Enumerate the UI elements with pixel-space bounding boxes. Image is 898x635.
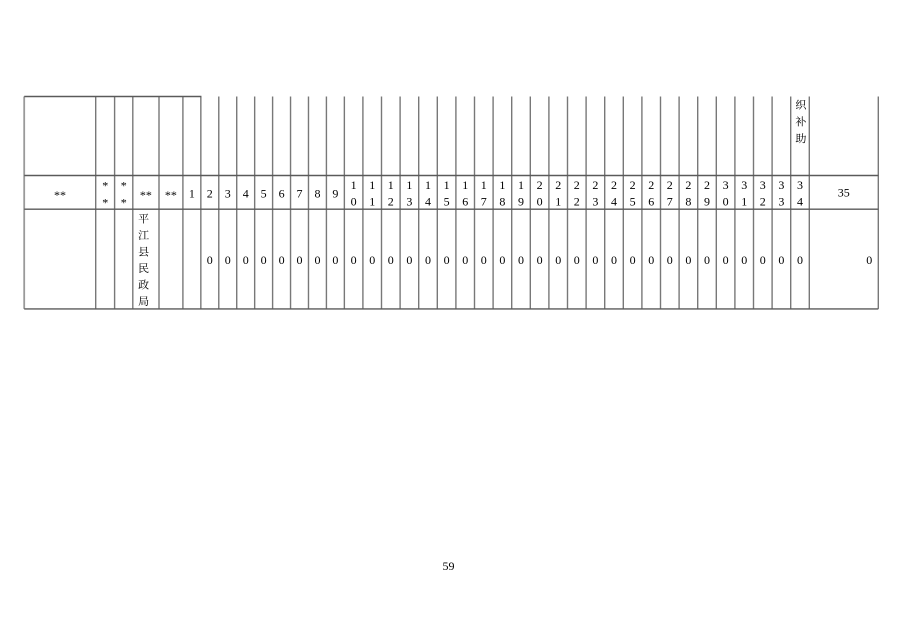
svg-text:0: 0 (704, 253, 710, 267)
svg-text:0: 0 (518, 253, 524, 267)
svg-text:0: 0 (297, 253, 303, 267)
svg-text:3: 3 (723, 178, 729, 192)
svg-text:3: 3 (406, 195, 412, 209)
svg-text:0: 0 (685, 253, 691, 267)
svg-text:1: 1 (444, 178, 450, 192)
svg-text:0: 0 (388, 253, 394, 267)
svg-text:3: 3 (778, 195, 784, 209)
svg-text:1: 1 (425, 178, 431, 192)
svg-text:8: 8 (315, 186, 321, 200)
svg-text:2: 2 (207, 186, 213, 200)
svg-text:*: * (121, 196, 127, 210)
svg-text:4: 4 (425, 195, 431, 209)
svg-text:1: 1 (499, 178, 505, 192)
svg-text:3: 3 (225, 186, 231, 200)
svg-text:**: ** (165, 188, 177, 202)
svg-text:0: 0 (225, 253, 231, 267)
svg-text:1: 1 (369, 195, 375, 209)
svg-text:0: 0 (667, 253, 673, 267)
svg-text:1: 1 (555, 195, 561, 209)
svg-text:4: 4 (243, 186, 249, 200)
svg-text:3: 3 (760, 178, 766, 192)
svg-text:2: 2 (685, 178, 691, 192)
svg-text:0: 0 (462, 253, 468, 267)
svg-text:6: 6 (648, 195, 654, 209)
svg-text:35: 35 (838, 186, 850, 200)
svg-text:0: 0 (537, 195, 543, 209)
svg-text:0: 0 (630, 253, 636, 267)
svg-text:0: 0 (499, 253, 505, 267)
svg-text:0: 0 (369, 253, 375, 267)
svg-text:1: 1 (351, 178, 357, 192)
svg-text:1: 1 (369, 178, 375, 192)
svg-text:0: 0 (778, 253, 784, 267)
svg-text:0: 0 (592, 253, 598, 267)
svg-text:2: 2 (574, 195, 580, 209)
svg-text:2: 2 (704, 178, 710, 192)
svg-text:2: 2 (555, 178, 561, 192)
svg-text:0: 0 (611, 253, 617, 267)
svg-text:8: 8 (685, 195, 691, 209)
svg-text:**: ** (140, 188, 152, 202)
svg-text:0: 0 (351, 253, 357, 267)
svg-text:0: 0 (555, 253, 561, 267)
svg-text:0: 0 (481, 253, 487, 267)
svg-text:0: 0 (797, 253, 803, 267)
svg-text:8: 8 (499, 195, 505, 209)
svg-text:2: 2 (648, 178, 654, 192)
svg-text:59: 59 (443, 559, 455, 573)
svg-text:0: 0 (315, 253, 321, 267)
svg-text:5: 5 (261, 186, 267, 200)
svg-text:5: 5 (630, 195, 636, 209)
svg-text:2: 2 (388, 195, 394, 209)
svg-text:2: 2 (630, 178, 636, 192)
svg-text:1: 1 (406, 178, 412, 192)
svg-text:3: 3 (741, 178, 747, 192)
svg-text:1: 1 (741, 195, 747, 209)
svg-text:0: 0 (425, 253, 431, 267)
svg-text:2: 2 (760, 195, 766, 209)
svg-text:2: 2 (574, 178, 580, 192)
svg-text:4: 4 (611, 195, 617, 209)
svg-text:0: 0 (574, 253, 580, 267)
svg-text:2: 2 (667, 178, 673, 192)
svg-text:0: 0 (279, 253, 285, 267)
svg-text:6: 6 (279, 186, 285, 200)
svg-text:9: 9 (332, 186, 338, 200)
svg-text:**: ** (54, 188, 66, 202)
svg-text:0: 0 (648, 253, 654, 267)
svg-text:0: 0 (444, 253, 450, 267)
svg-text:9: 9 (518, 195, 524, 209)
svg-text:*: * (121, 179, 127, 193)
svg-text:7: 7 (297, 186, 303, 200)
svg-text:5: 5 (444, 195, 450, 209)
svg-text:9: 9 (704, 195, 710, 209)
svg-text:0: 0 (243, 253, 249, 267)
svg-text:2: 2 (592, 178, 598, 192)
svg-text:3: 3 (592, 195, 598, 209)
svg-text:1: 1 (462, 178, 468, 192)
svg-text:0: 0 (866, 253, 872, 267)
svg-text:1: 1 (388, 178, 394, 192)
svg-text:0: 0 (207, 253, 213, 267)
svg-text:7: 7 (481, 195, 487, 209)
svg-text:0: 0 (406, 253, 412, 267)
svg-text:0: 0 (332, 253, 338, 267)
svg-text:3: 3 (797, 178, 803, 192)
svg-text:0: 0 (537, 253, 543, 267)
svg-text:0: 0 (351, 195, 357, 209)
svg-text:0: 0 (723, 253, 729, 267)
svg-text:1: 1 (481, 178, 487, 192)
svg-text:6: 6 (462, 195, 468, 209)
svg-text:0: 0 (741, 253, 747, 267)
svg-text:2: 2 (611, 178, 617, 192)
svg-text:*: * (102, 179, 108, 193)
svg-text:1: 1 (518, 178, 524, 192)
svg-text:*: * (102, 196, 108, 210)
svg-text:0: 0 (723, 195, 729, 209)
svg-text:1: 1 (189, 186, 195, 200)
svg-text:4: 4 (797, 195, 803, 209)
svg-text:3: 3 (778, 178, 784, 192)
svg-text:0: 0 (261, 253, 267, 267)
svg-text:2: 2 (537, 178, 543, 192)
svg-text:7: 7 (667, 195, 673, 209)
svg-text:0: 0 (760, 253, 766, 267)
